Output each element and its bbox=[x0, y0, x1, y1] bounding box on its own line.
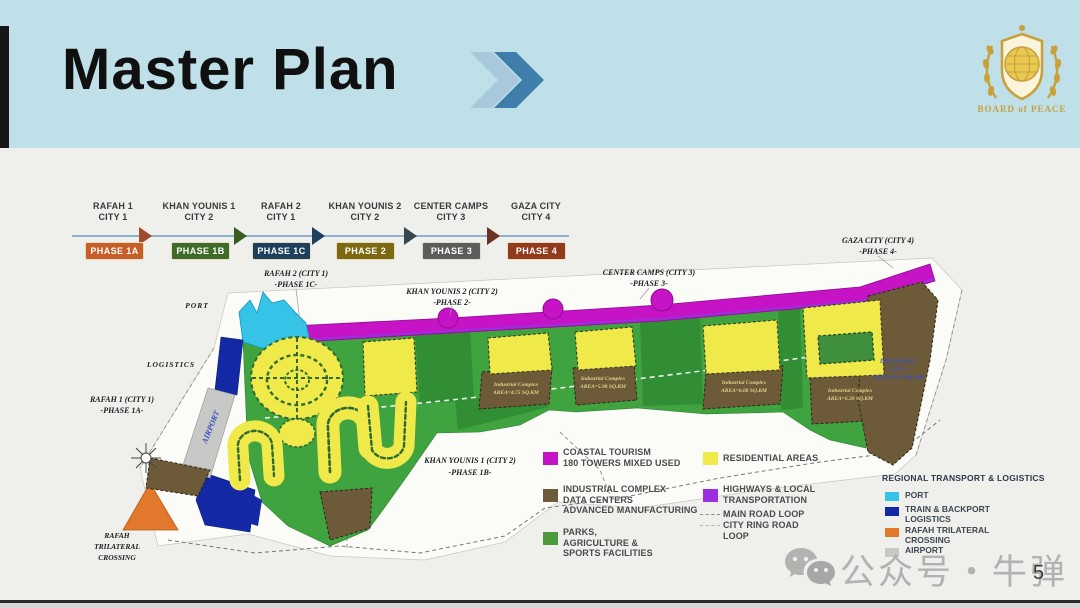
svg-text:Industrial Complex: Industrial Complex bbox=[827, 388, 872, 394]
svg-text:-PHASE 1A-: -PHASE 1A- bbox=[101, 406, 144, 415]
page-number: 5 bbox=[1033, 562, 1044, 585]
map-label-port: PORT bbox=[185, 301, 209, 310]
legend-swatch-industrial bbox=[543, 489, 558, 502]
transport-port: PORT bbox=[905, 491, 929, 501]
legend-dash-main-road bbox=[700, 514, 720, 515]
timeline-city-centercamps: CENTER CAMPS CITY 3 bbox=[403, 201, 499, 223]
coastal-node bbox=[438, 308, 458, 328]
legend-ring-road: CITY RING ROAD LOOP bbox=[723, 520, 799, 541]
page-title: Master Plan bbox=[62, 36, 399, 103]
coastal-node bbox=[543, 299, 563, 319]
svg-text:-PHASE 1B-: -PHASE 1B- bbox=[449, 468, 492, 477]
svg-text:CROSSING: CROSSING bbox=[98, 553, 136, 562]
svg-text:AREA=4.75 SQ.KM: AREA=4.75 SQ.KM bbox=[492, 390, 540, 396]
phase-badge-4: PHASE 4 bbox=[507, 242, 566, 260]
svg-text:AREA=6.39 SQ.KM: AREA=6.39 SQ.KM bbox=[826, 396, 874, 402]
map-label-gaza: GAZA CITY (CITY 4) bbox=[842, 236, 914, 245]
timeline-city-khanyounis2: KHAN YOUNIS 2 CITY 2 bbox=[317, 201, 413, 223]
transport-swatch-rafah bbox=[885, 528, 899, 537]
legend-dash-ring-road bbox=[700, 525, 720, 526]
svg-text:AREA=5.98 SQ.KM: AREA=5.98 SQ.KM bbox=[579, 384, 627, 390]
legend-highways: HIGHWAYS & LOCAL TRANSPORTATION bbox=[723, 484, 815, 505]
legend-coastal: COASTAL TOURISM 180 TOWERS MIXED USED bbox=[563, 447, 680, 468]
svg-text:CITY 4: CITY 4 bbox=[889, 367, 907, 373]
phase-badge-1c: PHASE 1C bbox=[252, 242, 311, 260]
svg-text:Industrial Complex: Industrial Complex bbox=[580, 376, 625, 382]
transport-legend-title: REGIONAL TRANSPORT & LOGISTICS bbox=[882, 473, 1045, 483]
legend-swatch-highways bbox=[703, 489, 718, 502]
svg-text:-PHASE 2-: -PHASE 2- bbox=[433, 298, 471, 307]
svg-text:AREA=6.08 SQ.KM: AREA=6.08 SQ.KM bbox=[720, 388, 768, 394]
map-label-khan2: KHAN YOUNIS 2 (CITY 2) bbox=[405, 287, 498, 296]
timeline-arrow bbox=[312, 227, 325, 245]
map-label-logistics: LOGISTICS bbox=[146, 360, 195, 369]
phase-badge-1b: PHASE 1B bbox=[171, 242, 230, 260]
timeline-city-gazacity: GAZA CITY CITY 4 bbox=[488, 201, 584, 223]
timeline-arrow bbox=[234, 227, 247, 245]
phase-badge-1a: PHASE 1A bbox=[85, 242, 144, 260]
transport-train: TRAIN & BACKPORT LOGISTICS bbox=[905, 505, 990, 524]
bottom-pad bbox=[0, 603, 1080, 608]
green-rect-parcel bbox=[818, 332, 874, 364]
legend-industrial: INDUSTRIAL COMPLEX DATA CENTERS ADVANCED… bbox=[563, 484, 698, 516]
svg-text:Industrial Complex: Industrial Complex bbox=[493, 382, 538, 388]
svg-text:-PHASE 3-: -PHASE 3- bbox=[630, 279, 668, 288]
coastal-node bbox=[651, 289, 673, 311]
timeline-city-rafah2: RAFAH 2 CITY 1 bbox=[233, 201, 329, 223]
timeline-city-rafah1: RAFAH 1 CITY 1 bbox=[65, 201, 161, 223]
transport-swatch-port bbox=[885, 492, 899, 501]
map-label-rafah1: RAFAH 1 (CITY 1) bbox=[89, 395, 154, 404]
legend-swatch-coastal bbox=[543, 452, 558, 465]
legend-swatch-parks bbox=[543, 532, 558, 545]
timeline-arrow bbox=[404, 227, 417, 245]
left-edge-strip bbox=[0, 26, 9, 148]
phase-badge-3: PHASE 3 bbox=[422, 242, 481, 260]
svg-text:-PHASE 4-: -PHASE 4- bbox=[859, 247, 897, 256]
chevron-right-icon bbox=[462, 52, 554, 108]
phase-badge-2: PHASE 2 bbox=[336, 242, 395, 260]
map-label-industrial-city: INDUSTRIAL bbox=[879, 359, 917, 365]
legend-main-road: MAIN ROAD LOOP bbox=[723, 509, 804, 520]
map-label-khan1: KHAN YOUNIS 1 (CITY 2) bbox=[423, 456, 516, 465]
svg-text:Industrial Complex: Industrial Complex bbox=[721, 380, 766, 386]
legend-swatch-residential bbox=[703, 452, 718, 465]
transport-rafah: RAFAH TRILATERAL CROSSING bbox=[905, 526, 989, 545]
map-label-center: CENTER CAMPS (CITY 3) bbox=[603, 268, 696, 277]
svg-text:TRILATERAL: TRILATERAL bbox=[94, 542, 140, 551]
map-label-crossing: RAFAH bbox=[103, 531, 130, 540]
legend-residential: RESIDENTIAL AREAS bbox=[723, 453, 818, 464]
map-label-rafah2: RAFAH 2 (CITY 1) bbox=[263, 269, 328, 278]
svg-text:AREA=9.43 SQ.KM: AREA=9.43 SQ.KM bbox=[872, 375, 924, 381]
slide: PORT LOGISTICS RAFAH 2 (CITY 1) -PHASE 1… bbox=[0, 0, 1080, 608]
wechat-icon bbox=[785, 546, 837, 590]
legend-parks: PARKS, AGRICULTURE & SPORTS FACILITIES bbox=[563, 527, 653, 559]
svg-text:-PHASE 1C-: -PHASE 1C- bbox=[275, 280, 318, 289]
logo-caption: BOARD of PEACE bbox=[958, 104, 1080, 114]
timeline-arrow bbox=[487, 227, 500, 245]
transport-swatch-train bbox=[885, 507, 899, 516]
